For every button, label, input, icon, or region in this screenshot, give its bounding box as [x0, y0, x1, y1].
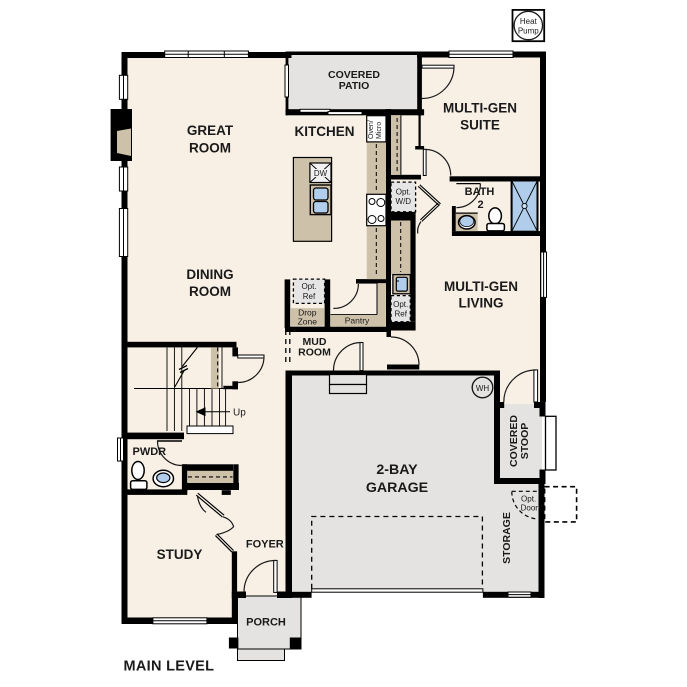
svg-text:WH: WH: [476, 384, 490, 393]
svg-text:Opt.: Opt.: [301, 282, 316, 291]
svg-text:PORCH: PORCH: [246, 617, 286, 629]
svg-text:W/D: W/D: [396, 197, 412, 206]
svg-text:GREAT: GREAT: [187, 123, 234, 138]
svg-text:2-BAY: 2-BAY: [376, 462, 418, 478]
svg-text:Ref: Ref: [303, 292, 316, 301]
svg-text:ROOM: ROOM: [298, 347, 331, 359]
svg-text:ROOM: ROOM: [189, 141, 231, 156]
svg-text:SUITE: SUITE: [460, 118, 500, 133]
svg-text:Door: Door: [521, 504, 539, 513]
svg-text:Opt.: Opt.: [393, 300, 408, 309]
svg-text:LIVING: LIVING: [458, 295, 503, 310]
svg-text:Pump: Pump: [518, 27, 539, 36]
svg-text:Oven/: Oven/: [368, 120, 375, 139]
svg-text:Pantry: Pantry: [345, 316, 370, 326]
svg-text:Heat: Heat: [520, 17, 538, 26]
svg-text:MULTI-GEN: MULTI-GEN: [443, 101, 517, 116]
svg-text:FOYER: FOYER: [246, 538, 284, 550]
svg-text:STOOP: STOOP: [519, 423, 531, 460]
svg-text:BATH: BATH: [465, 186, 495, 198]
svg-text:MULTI-GEN: MULTI-GEN: [444, 279, 518, 294]
svg-text:KITCHEN: KITCHEN: [295, 124, 355, 139]
svg-text:PWDR: PWDR: [132, 446, 166, 458]
svg-text:2: 2: [477, 199, 483, 211]
svg-text:Opt.: Opt.: [521, 495, 536, 504]
svg-text:Up: Up: [233, 408, 246, 419]
svg-text:STUDY: STUDY: [157, 547, 203, 562]
svg-text:PATIO: PATIO: [339, 80, 370, 92]
svg-text:ROOM: ROOM: [189, 284, 231, 299]
svg-text:COVERED: COVERED: [328, 69, 380, 81]
svg-text:Zone: Zone: [298, 317, 318, 327]
svg-text:GARAGE: GARAGE: [366, 480, 428, 496]
svg-text:DW: DW: [314, 169, 328, 178]
svg-text:Micro: Micro: [376, 122, 383, 139]
svg-text:DINING: DINING: [186, 267, 233, 282]
svg-text:STORAGE: STORAGE: [501, 512, 513, 564]
svg-text:MAIN LEVEL: MAIN LEVEL: [124, 659, 215, 675]
svg-text:Ref: Ref: [394, 310, 407, 319]
svg-text:Opt.: Opt.: [396, 187, 411, 196]
